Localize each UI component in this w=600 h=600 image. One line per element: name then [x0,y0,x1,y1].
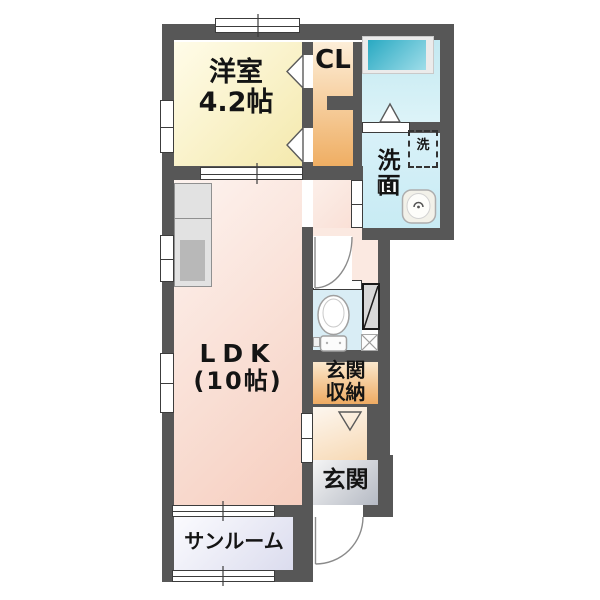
entrance-storage-line2: 収納 [313,381,378,403]
floor-plan: 洋室 4.2帖 CL 洗面 洗 LDK (10帖) 玄関 収納 玄関 サンルーム [0,0,600,600]
kitchen-counter [174,183,212,287]
western-room-size: 4.2帖 [176,88,296,118]
entrance-storage-line1: 玄関 [313,359,378,381]
window-ldk-left-upper-icon [160,235,174,282]
sliding-door-hall-ldk-icon [301,413,313,463]
ldk-name: LDK [172,340,304,368]
label-closet: CL [313,46,353,75]
bathtub-basin [368,40,426,70]
label-washer: 洗 [408,139,438,154]
kitchen-counter-divider [175,218,211,219]
pipe-space-box [361,334,378,351]
kitchen-stove [180,240,205,281]
sliding-door-western-ldk-icon [200,167,303,180]
ldk-size: (10帖) [172,368,304,395]
bath-door-band [362,122,410,133]
label-western-room: 洋室 4.2帖 [176,58,296,118]
bathtub [362,36,434,74]
wall-sunroom-top-segment [275,505,293,517]
window-sunroom-top-icon [172,505,275,517]
window-top-icon [215,18,300,33]
sliding-door-washroom-icon [351,180,363,228]
label-sunroom: サンルーム [175,530,293,552]
window-west-left-icon [160,100,174,153]
label-ldk: LDK (10帖) [172,340,304,395]
closet-opening-lower [303,128,313,162]
wall-right-upper [440,24,454,240]
wall-washroom-bottom [362,228,454,240]
window-sunroom-bottom-icon [172,570,275,582]
toilet-door-swing-area [313,236,352,288]
front-door-opening [313,505,363,517]
wall-hall-right [367,406,378,460]
label-washroom: 洗面 [366,148,398,198]
room-toilet [313,290,362,350]
western-room-name: 洋室 [176,58,296,88]
label-entrance-storage: 玄関 収納 [313,359,378,404]
wall-closet-stub [327,96,362,110]
shaft-box [362,283,380,330]
label-entrance: 玄関 [313,468,378,494]
front-door-icon [316,517,364,564]
room-hall [313,406,367,460]
closet-opening-upper [303,55,313,88]
wall-closet-right [353,42,362,180]
wall-front [363,505,393,517]
